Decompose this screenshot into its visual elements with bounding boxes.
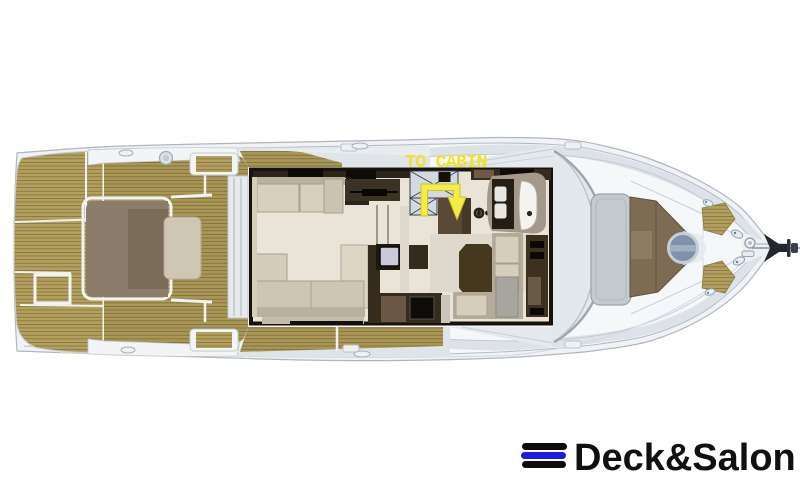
svg-text:TO CABIN: TO CABIN [405, 152, 487, 173]
svg-text:Deck&Salon: Deck&Salon [574, 437, 796, 479]
